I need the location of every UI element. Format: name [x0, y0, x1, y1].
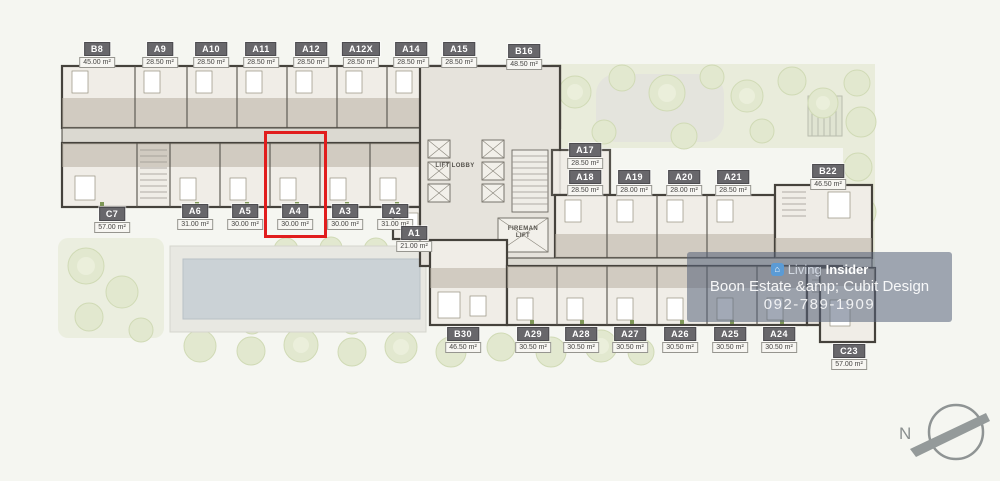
unit-name: A19 — [618, 170, 650, 184]
unit-label-b22: B22 46.50 m² — [810, 164, 846, 190]
unit-name: A18 — [569, 170, 601, 184]
unit-label-a17: A17 28.50 m² — [567, 143, 603, 169]
unit-area: 21.00 m² — [396, 241, 432, 252]
unit-area: 46.50 m² — [810, 179, 846, 190]
unit-label-b16: B16 48.50 m² — [506, 44, 542, 70]
unit-area: 28.00 m² — [616, 185, 652, 196]
unit-area: 28.00 m² — [666, 185, 702, 196]
unit-name: A3 — [332, 204, 358, 218]
unit-name: B8 — [84, 42, 110, 56]
unit-label-a5: A5 30.00 m² — [227, 204, 263, 230]
unit-label-a11: A11 28.50 m² — [243, 42, 279, 68]
unit-area: 57.00 m² — [94, 222, 130, 233]
unit-area: 28.50 m² — [293, 57, 329, 68]
unit-name: C23 — [833, 344, 865, 358]
unit-area: 28.50 m² — [142, 57, 178, 68]
unit-label-a20: A20 28.00 m² — [666, 170, 702, 196]
floor-plan-canvas: LIFT LOBBY FIREMAN LIFT B8 45.00 m² A9 2… — [0, 0, 1000, 481]
unit-area: 30.50 m² — [612, 342, 648, 353]
unit-label-a3: A3 30.00 m² — [327, 204, 363, 230]
unit-area: 45.00 m² — [79, 57, 115, 68]
unit-name: A25 — [714, 327, 746, 341]
living-insider-logo-icon: ⌂ — [771, 263, 784, 276]
highlight-box-a4 — [264, 131, 327, 238]
unit-area: 30.50 m² — [563, 342, 599, 353]
unit-name: A17 — [569, 143, 601, 157]
unit-label-a19: A19 28.00 m² — [616, 170, 652, 196]
unit-label-b30: B30 46.50 m² — [445, 327, 481, 353]
unit-name: A9 — [147, 42, 173, 56]
unit-area: 30.50 m² — [712, 342, 748, 353]
unit-area: 28.50 m² — [393, 57, 429, 68]
unit-label-a9: A9 28.50 m² — [142, 42, 178, 68]
unit-area: 30.50 m² — [515, 342, 551, 353]
unit-name: A5 — [232, 204, 258, 218]
unit-area: 31.00 m² — [177, 219, 213, 230]
unit-label-a28: A28 30.50 m² — [563, 327, 599, 353]
unit-label-a6: A6 31.00 m² — [177, 204, 213, 230]
unit-area: 46.50 m² — [445, 342, 481, 353]
unit-label-c7: C7 57.00 m² — [94, 207, 130, 233]
unit-name: A12X — [342, 42, 380, 56]
unit-label-a24: A24 30.50 m² — [761, 327, 797, 353]
unit-area: 28.50 m² — [343, 57, 379, 68]
watermark-brand-bold: Insider — [826, 262, 869, 277]
unit-name: A26 — [664, 327, 696, 341]
compass-north-label: N — [899, 424, 911, 444]
unit-area: 30.50 m² — [761, 342, 797, 353]
lift-lobby-label: LIFT LOBBY — [435, 163, 475, 170]
unit-label-c23: C23 57.00 m² — [831, 344, 867, 370]
floor-plan-graphic — [0, 0, 1000, 481]
unit-label-a14: A14 28.50 m² — [393, 42, 429, 68]
unit-name: A20 — [668, 170, 700, 184]
unit-area: 48.50 m² — [506, 59, 542, 70]
unit-area: 28.50 m² — [193, 57, 229, 68]
unit-name: B30 — [447, 327, 479, 341]
unit-label-a25: A25 30.50 m² — [712, 327, 748, 353]
unit-area: 30.50 m² — [662, 342, 698, 353]
unit-b22-block — [775, 185, 872, 258]
unit-name: A29 — [517, 327, 549, 341]
unit-label-a29: A29 30.50 m² — [515, 327, 551, 353]
watermark-brand-light: Living — [788, 262, 822, 277]
unit-name: A21 — [717, 170, 749, 184]
unit-name: A28 — [565, 327, 597, 341]
unit-name: A12 — [295, 42, 327, 56]
unit-area: 28.50 m² — [567, 158, 603, 169]
watermark-band: ⌂ Living Insider Boon Estate &amp; Cubit… — [687, 252, 952, 322]
unit-area: 30.00 m² — [327, 219, 363, 230]
unit-label-a26: A26 30.50 m² — [662, 327, 698, 353]
unit-name: A2 — [382, 204, 408, 218]
unit-b30-block — [430, 240, 507, 325]
compass-icon — [910, 405, 990, 459]
unit-label-b8: B8 45.00 m² — [79, 42, 115, 68]
unit-name: A24 — [763, 327, 795, 341]
unit-label-a15: A15 28.50 m² — [441, 42, 477, 68]
unit-name: C7 — [99, 207, 125, 221]
unit-name: A10 — [195, 42, 227, 56]
fireman-lift-label: FIREMAN LIFT — [503, 226, 543, 240]
unit-area: 28.50 m² — [715, 185, 751, 196]
left-wing-bottom-row — [62, 143, 420, 207]
unit-area: 28.50 m² — [567, 185, 603, 196]
unit-label-a18: A18 28.50 m² — [567, 170, 603, 196]
unit-label-a21: A21 28.50 m² — [715, 170, 751, 196]
unit-label-a10: A10 28.50 m² — [193, 42, 229, 68]
unit-area: 30.00 m² — [227, 219, 263, 230]
right-wing-upper-row — [555, 195, 775, 258]
unit-label-a1: A1 21.00 m² — [396, 226, 432, 252]
unit-name: A11 — [245, 42, 276, 56]
unit-name: B22 — [812, 164, 844, 178]
pool-area — [170, 246, 426, 332]
unit-name: A27 — [614, 327, 646, 341]
unit-name: A1 — [401, 226, 427, 240]
unit-area: 57.00 m² — [831, 359, 867, 370]
unit-name: A6 — [182, 204, 208, 218]
unit-label-a12x: A12X 28.50 m² — [342, 42, 380, 68]
unit-label-a12: A12 28.50 m² — [293, 42, 329, 68]
unit-label-a27: A27 30.50 m² — [612, 327, 648, 353]
unit-name: A15 — [443, 42, 475, 56]
unit-area: 28.50 m² — [441, 57, 477, 68]
unit-name: A14 — [395, 42, 427, 56]
watermark-phone: 092-789-1909 — [764, 296, 875, 313]
watermark-company: Boon Estate &amp; Cubit Design — [710, 278, 929, 295]
unit-area: 28.50 m² — [243, 57, 279, 68]
watermark-brand: ⌂ Living Insider — [771, 262, 869, 277]
unit-name: B16 — [508, 44, 540, 58]
